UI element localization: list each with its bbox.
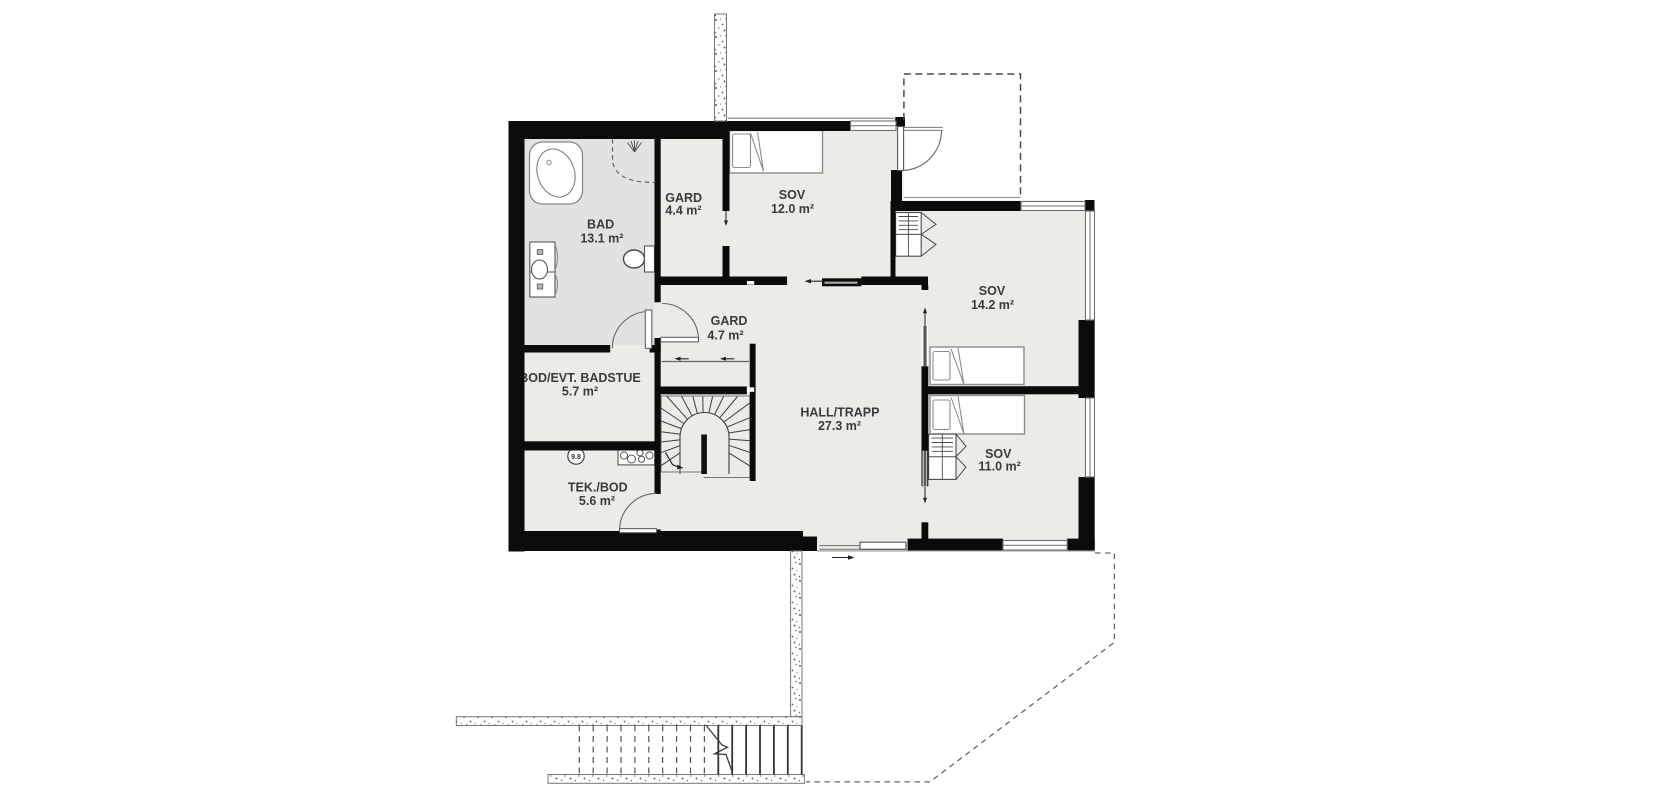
svg-text:SOV: SOV: [779, 188, 806, 202]
svg-text:9.8: 9.8: [571, 454, 581, 461]
svg-text:BOD/EVT. BADSTUE: BOD/EVT. BADSTUE: [519, 371, 641, 385]
svg-text:4.7 m²: 4.7 m²: [707, 329, 743, 343]
svg-text:HALL/TRAPP: HALL/TRAPP: [800, 405, 879, 419]
svg-text:5.6 m²: 5.6 m²: [579, 494, 615, 508]
svg-text:4.4 m²: 4.4 m²: [665, 204, 701, 218]
svg-text:GARD: GARD: [711, 314, 748, 328]
svg-text:5.7 m²: 5.7 m²: [562, 385, 598, 399]
svg-text:11.0 m²: 11.0 m²: [978, 460, 1020, 474]
svg-text:13.1 m²: 13.1 m²: [580, 232, 623, 246]
svg-text:BAD: BAD: [587, 218, 614, 232]
svg-text:TEK./BOD: TEK./BOD: [568, 481, 628, 495]
svg-text:27.3 m²: 27.3 m²: [818, 419, 861, 433]
svg-text:12.0 m²: 12.0 m²: [771, 202, 814, 216]
svg-text:SOV: SOV: [979, 284, 1006, 298]
svg-text:14.2 m²: 14.2 m²: [971, 298, 1014, 312]
